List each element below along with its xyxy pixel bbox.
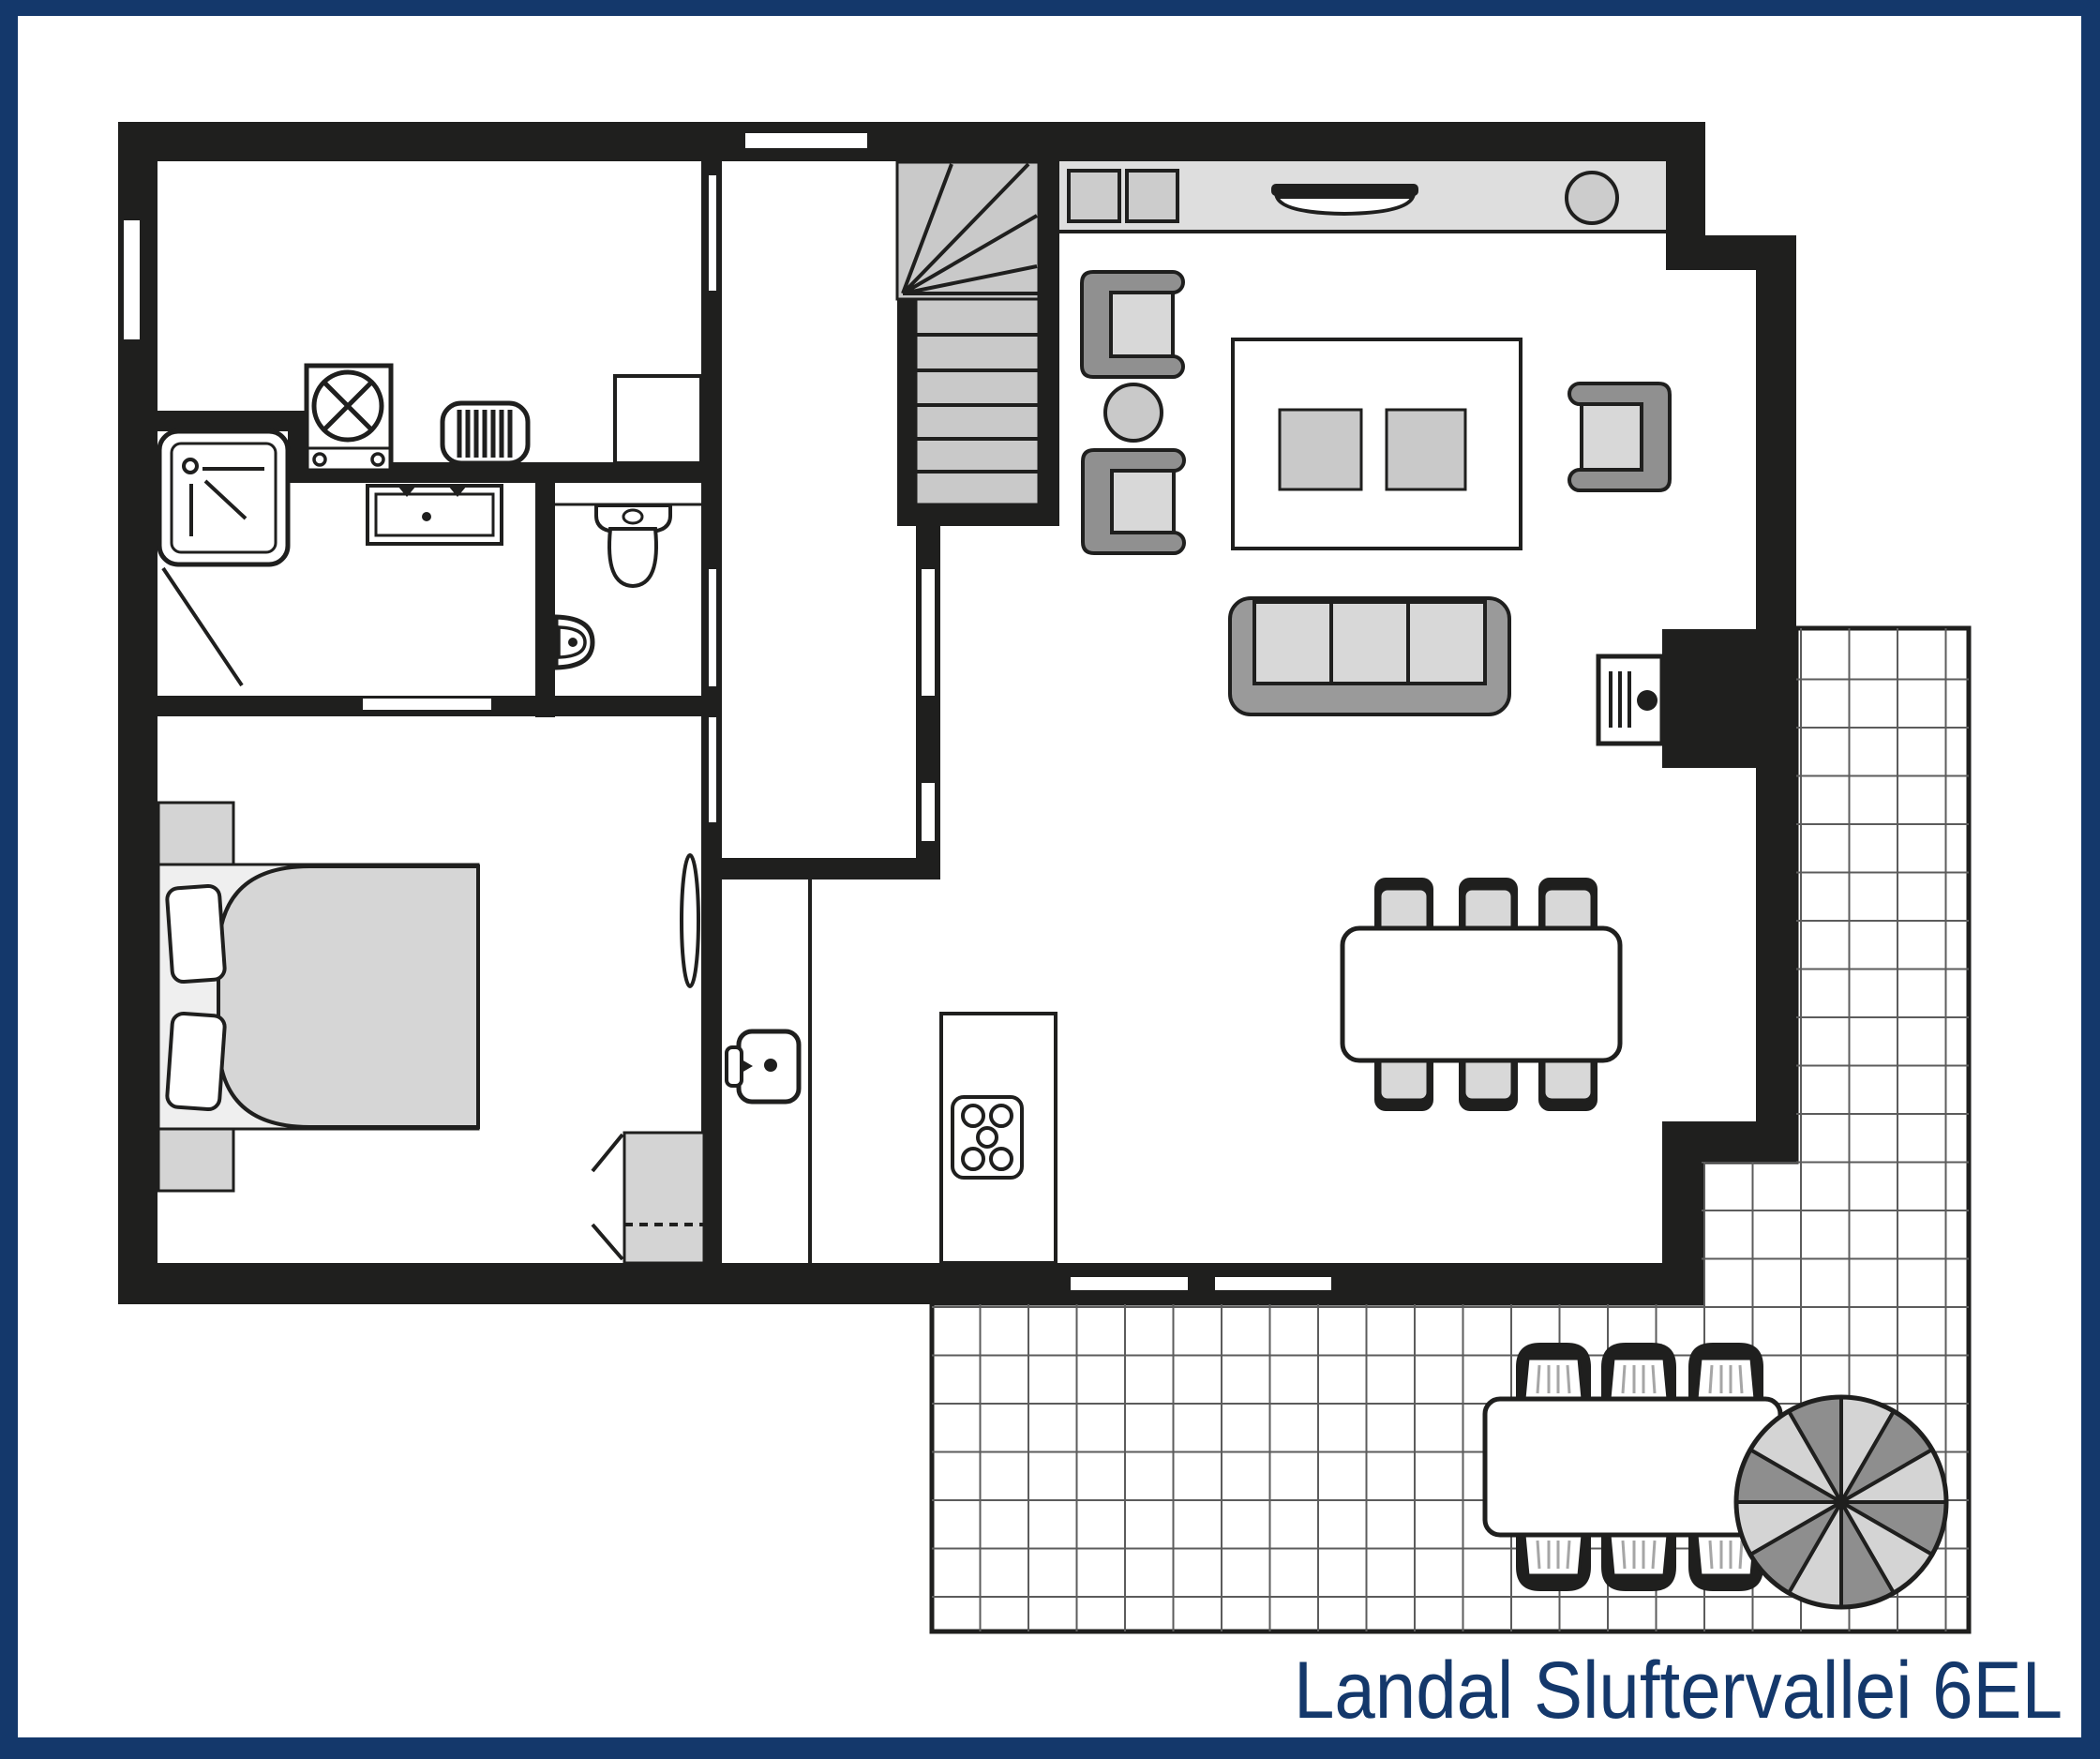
- svg-text:Landal Sluftervallei 6EL: Landal Sluftervallei 6EL: [1294, 1646, 2062, 1736]
